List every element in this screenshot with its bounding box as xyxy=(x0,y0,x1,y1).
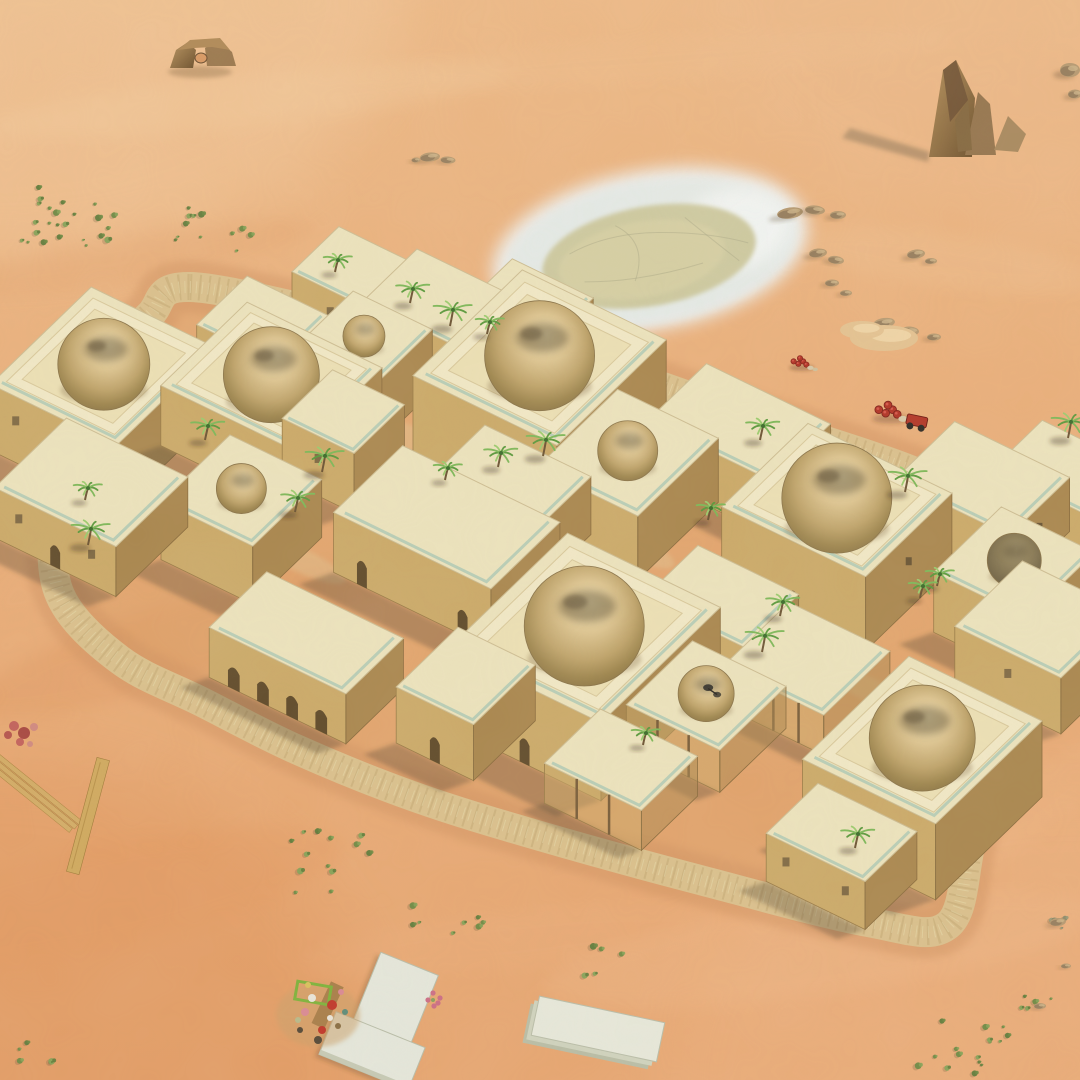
grain-overlay xyxy=(0,0,1080,1080)
render-viewport xyxy=(0,0,1080,1080)
desert-village-scene xyxy=(0,0,1080,1080)
